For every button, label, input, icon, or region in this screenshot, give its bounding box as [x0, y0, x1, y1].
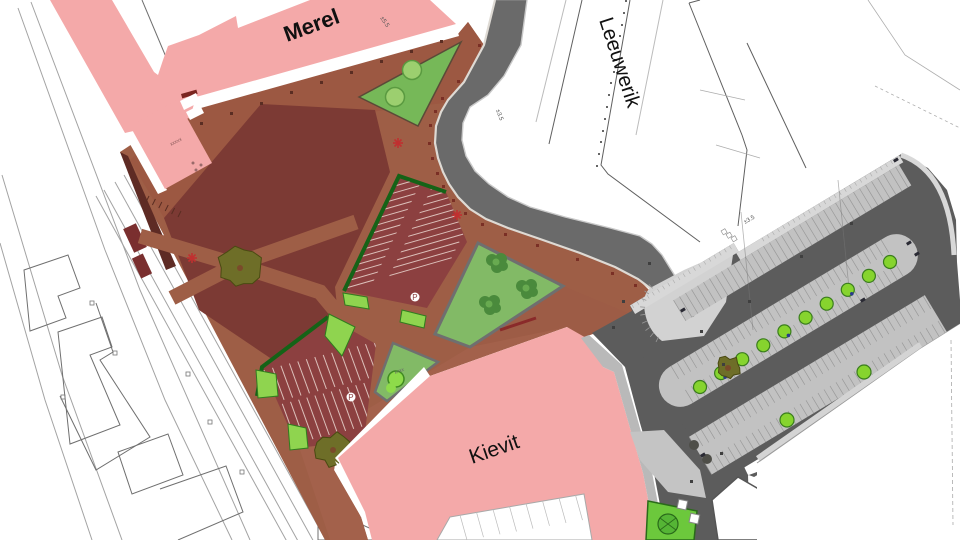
svg-text:P: P — [412, 293, 417, 302]
svg-text:P: P — [348, 393, 353, 402]
